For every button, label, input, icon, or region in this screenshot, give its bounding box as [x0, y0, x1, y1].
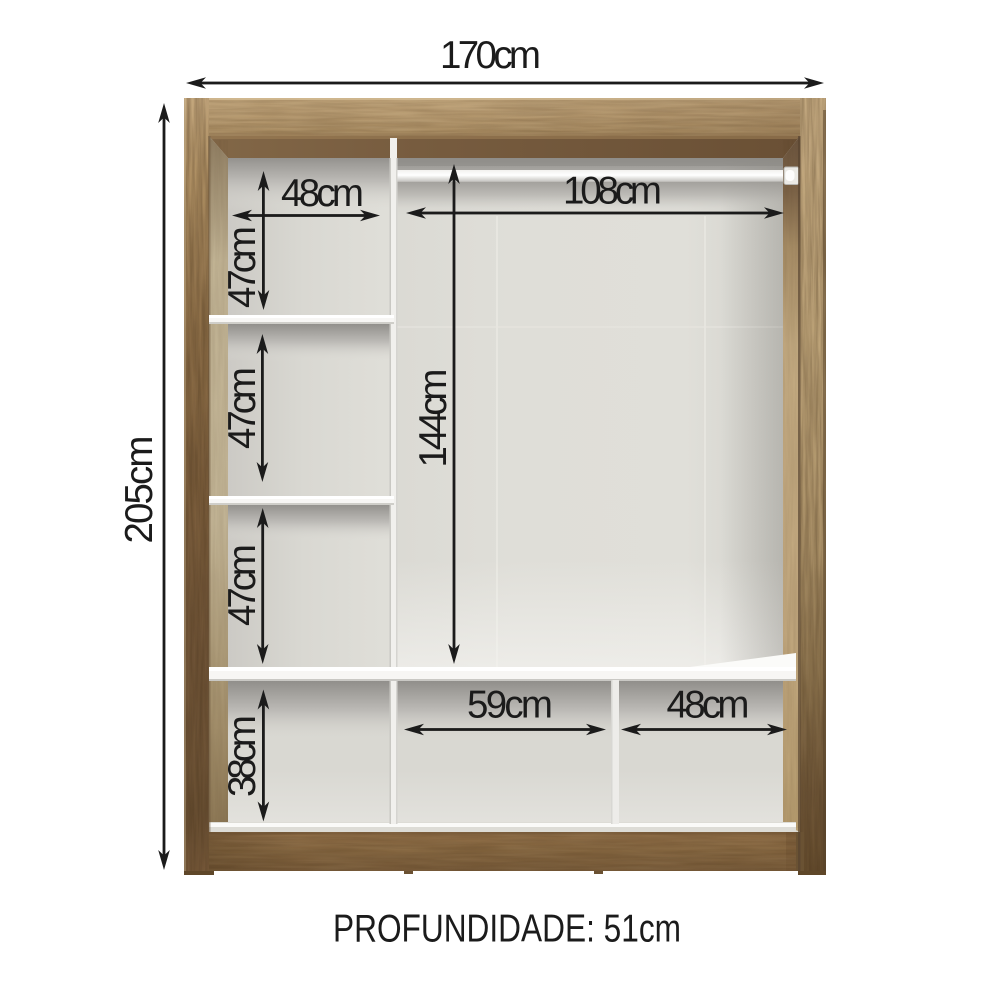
svg-text:144cm: 144cm — [412, 369, 455, 468]
svg-text:170cm: 170cm — [440, 34, 541, 77]
svg-text:47cm: 47cm — [221, 226, 264, 308]
svg-text:205cm: 205cm — [118, 436, 161, 544]
svg-text:38cm: 38cm — [221, 715, 264, 797]
svg-text:59cm: 59cm — [467, 684, 553, 727]
svg-text:PROFUNDIDADE: 51cm: PROFUNDIDADE: 51cm — [333, 908, 681, 951]
svg-text:47cm: 47cm — [221, 544, 264, 626]
svg-text:47cm: 47cm — [221, 367, 264, 449]
svg-text:48cm: 48cm — [281, 172, 364, 215]
svg-text:48cm: 48cm — [667, 684, 750, 727]
svg-text:108cm: 108cm — [563, 170, 662, 213]
